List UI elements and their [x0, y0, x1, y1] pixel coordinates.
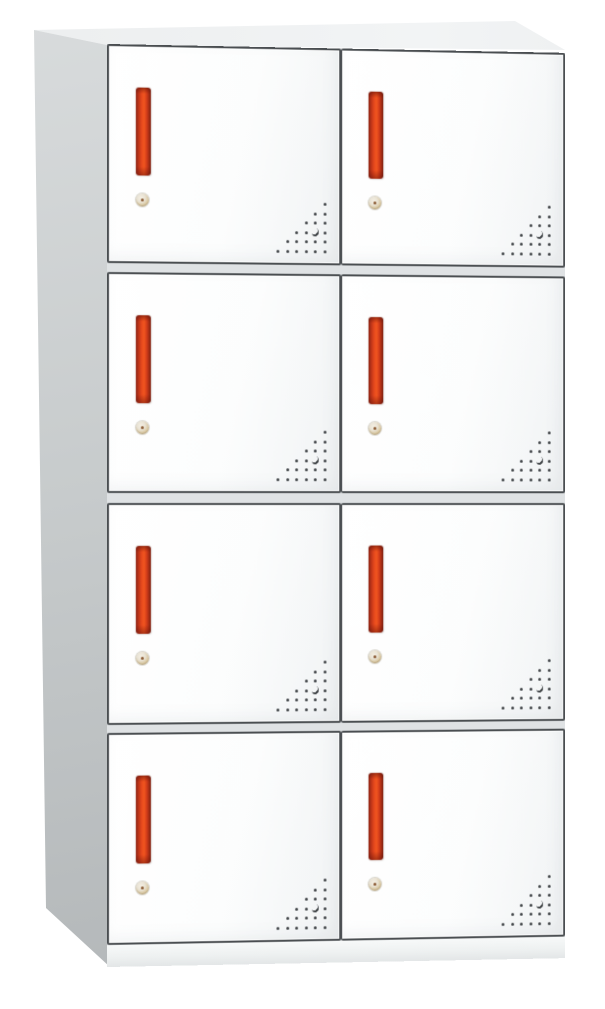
vent-dot: [324, 917, 327, 920]
vent-dot: [314, 478, 317, 481]
vent-dot: [305, 241, 308, 244]
vent-dot: [324, 222, 327, 225]
vent-dot: [305, 926, 308, 929]
vent-dot: [324, 661, 327, 664]
vent-dot: [529, 706, 532, 709]
vent-dot: [305, 917, 308, 920]
vent-dot: [502, 478, 505, 481]
vent-dot: [324, 231, 327, 234]
vent-crescent-hole: [312, 456, 319, 464]
door-lock: [136, 881, 149, 894]
vent-dot: [295, 250, 298, 253]
vent-dot: [314, 888, 317, 891]
vent-dot: [314, 450, 317, 453]
vent-dot: [295, 699, 298, 702]
vent-crescent-hole: [537, 457, 544, 465]
vent-dot: [295, 917, 298, 920]
vent-dot: [548, 903, 551, 906]
vent-dot: [324, 907, 327, 910]
vent-dot: [511, 243, 514, 246]
door-handle: [369, 546, 384, 633]
vent-dot: [548, 234, 551, 237]
vent-dot: [548, 215, 551, 218]
vent-dot: [548, 669, 551, 672]
locker-door-r2c1: [107, 272, 341, 493]
locker-product-photo: [0, 0, 605, 1009]
vent-dot: [324, 212, 327, 215]
locker-door-r1c1: [107, 44, 341, 265]
vent-dot: [324, 689, 327, 692]
vent-dot: [529, 450, 532, 453]
vent-dot: [286, 240, 289, 243]
locker-door-r4c2: [341, 729, 565, 941]
vent-dot: [511, 697, 514, 700]
vent-dot: [305, 459, 308, 462]
vent-dot: [548, 913, 551, 916]
vent-dot: [548, 224, 551, 227]
vent-dot: [539, 669, 542, 672]
vent-dot: [324, 478, 327, 481]
vent-dot: [305, 250, 308, 253]
vent-dot: [324, 708, 327, 711]
vent-dot: [314, 917, 317, 920]
vent-dot: [286, 917, 289, 920]
door-handle: [369, 92, 384, 179]
vent-dot: [276, 709, 279, 712]
vent-crescent-hole: [537, 900, 544, 908]
vent-dot: [286, 250, 289, 253]
vent-dot: [529, 922, 532, 925]
vent-dot: [529, 678, 532, 681]
vent-dot: [539, 885, 542, 888]
door-lock: [369, 196, 382, 209]
cabinet-front: [107, 44, 565, 967]
vent-dot: [314, 222, 317, 225]
vent-dot: [305, 469, 308, 472]
vent-dot: [539, 478, 542, 481]
locker-door-r4c1: [107, 731, 341, 945]
vent-dot: [295, 908, 298, 911]
vent-dot: [305, 222, 308, 225]
door-lock: [369, 422, 382, 435]
vent-dot: [305, 680, 308, 683]
vent-dot: [529, 460, 532, 463]
vent-dot: [286, 699, 289, 702]
vent-dot: [305, 689, 308, 692]
vent-dot: [314, 241, 317, 244]
vent-dot: [286, 478, 289, 481]
vent-dot: [539, 243, 542, 246]
vent-dot: [539, 894, 542, 897]
vent-dot: [286, 469, 289, 472]
door-handle: [136, 315, 151, 403]
vent-dot: [324, 203, 327, 206]
vent-dot: [305, 450, 308, 453]
vent-dot: [295, 708, 298, 711]
vent-dot: [295, 459, 298, 462]
vent-dot: [295, 241, 298, 244]
vent-dot: [276, 927, 279, 930]
vent-dot: [539, 441, 542, 444]
vent-dot: [324, 699, 327, 702]
vent-dot: [502, 923, 505, 926]
vent-dot: [520, 923, 523, 926]
vent-dot: [305, 708, 308, 711]
vent-holes: [501, 205, 551, 257]
vent-dot: [520, 243, 523, 246]
vent-dot: [314, 926, 317, 929]
vent-dot: [539, 215, 542, 218]
vent-dot: [520, 252, 523, 255]
vent-dot: [314, 898, 317, 901]
vent-dot: [548, 253, 551, 256]
vent-dot: [324, 440, 327, 443]
vent-holes: [501, 431, 551, 482]
vent-dot: [548, 706, 551, 709]
vent-dot: [548, 697, 551, 700]
vent-dot: [529, 478, 532, 481]
vent-dot: [314, 708, 317, 711]
vent-dot: [295, 689, 298, 692]
locker-door-r3c1: [107, 503, 341, 725]
vent-dot: [548, 884, 551, 887]
vent-dot: [520, 697, 523, 700]
vent-dot: [305, 699, 308, 702]
locker-door-r1c2: [341, 49, 565, 268]
door-handle: [136, 776, 151, 864]
vent-dot: [511, 923, 514, 926]
vent-dot: [548, 460, 551, 463]
vent-crescent-hole: [312, 228, 319, 236]
vent-dot: [539, 678, 542, 681]
vent-dot: [529, 224, 532, 227]
vent-dot: [529, 904, 532, 907]
vent-dot: [529, 894, 532, 897]
vent-dot: [324, 879, 327, 882]
vent-dot: [324, 898, 327, 901]
vent-dot: [539, 922, 542, 925]
vent-dot: [548, 687, 551, 690]
vent-dot: [276, 250, 279, 253]
vent-dot: [548, 875, 551, 878]
vent-dot: [520, 706, 523, 709]
vent-holes: [501, 875, 551, 927]
vent-dot: [529, 253, 532, 256]
vent-crescent-hole: [312, 904, 319, 912]
vent-dot: [314, 440, 317, 443]
door-lock: [369, 878, 382, 891]
vent-dot: [324, 888, 327, 891]
vent-dot: [529, 469, 532, 472]
vent-dot: [520, 688, 523, 691]
vent-dot: [539, 224, 542, 227]
vent-dot: [520, 913, 523, 916]
vent-dot: [539, 706, 542, 709]
vent-dot: [305, 898, 308, 901]
vent-dot: [511, 469, 514, 472]
vent-dot: [295, 231, 298, 234]
vent-dot: [529, 687, 532, 690]
vent-dot: [305, 231, 308, 234]
vent-dot: [295, 478, 298, 481]
vent-dot: [548, 894, 551, 897]
vent-dot: [511, 707, 514, 710]
vent-dot: [529, 913, 532, 916]
vent-dot: [548, 922, 551, 925]
vent-dot: [548, 678, 551, 681]
vent-dot: [314, 670, 317, 673]
vent-dot: [295, 927, 298, 930]
vent-dot: [548, 479, 551, 482]
vent-dot: [324, 469, 327, 472]
vent-dot: [324, 241, 327, 244]
vent-dot: [324, 450, 327, 453]
vent-dot: [324, 431, 327, 434]
vent-dot: [548, 469, 551, 472]
vent-dot: [324, 250, 327, 253]
locker-door-r2c2: [341, 274, 565, 493]
vent-dot: [286, 708, 289, 711]
vent-dot: [314, 469, 317, 472]
vent-holes: [275, 879, 326, 931]
vent-holes: [275, 661, 326, 713]
vent-dot: [548, 659, 551, 662]
vent-dot: [286, 927, 289, 930]
vent-dot: [511, 478, 514, 481]
door-handle: [136, 88, 151, 176]
vent-dot: [314, 212, 317, 215]
vent-dot: [324, 459, 327, 462]
vent-crescent-hole: [537, 684, 544, 692]
vent-dot: [305, 478, 308, 481]
door-lock: [136, 421, 149, 434]
door-handle: [369, 773, 384, 860]
vent-crescent-hole: [537, 231, 544, 239]
door-lock: [136, 193, 149, 206]
vent-holes: [275, 431, 326, 483]
vent-dot: [548, 441, 551, 444]
vent-dot: [539, 450, 542, 453]
vent-holes: [275, 202, 326, 254]
vent-crescent-hole: [312, 686, 319, 694]
vent-dot: [314, 250, 317, 253]
vent-dot: [502, 252, 505, 255]
vent-dot: [305, 907, 308, 910]
vent-dot: [511, 252, 514, 255]
vent-dot: [295, 469, 298, 472]
vent-dot: [529, 243, 532, 246]
locker-door-r3c2: [341, 503, 565, 723]
vent-dot: [502, 707, 505, 710]
vent-dot: [276, 478, 279, 481]
vent-dot: [314, 699, 317, 702]
vent-dot: [314, 680, 317, 683]
vent-dot: [520, 469, 523, 472]
vent-dot: [511, 913, 514, 916]
vent-dot: [520, 904, 523, 907]
vent-dot: [529, 697, 532, 700]
vent-dot: [548, 243, 551, 246]
door-lock: [136, 652, 149, 665]
vent-dot: [324, 926, 327, 929]
vent-dot: [529, 234, 532, 237]
door-handle: [136, 546, 151, 634]
vent-dot: [539, 469, 542, 472]
vent-dot: [539, 253, 542, 256]
vent-holes: [501, 659, 551, 710]
vent-dot: [539, 913, 542, 916]
vent-dot: [548, 450, 551, 453]
door-handle: [369, 317, 384, 404]
door-lock: [369, 650, 382, 663]
vent-dot: [520, 234, 523, 237]
vent-dot: [324, 670, 327, 673]
vent-dot: [324, 680, 327, 683]
vent-dot: [548, 431, 551, 434]
vent-dot: [520, 460, 523, 463]
vent-dot: [539, 697, 542, 700]
vent-dot: [520, 478, 523, 481]
vent-dot: [548, 206, 551, 209]
